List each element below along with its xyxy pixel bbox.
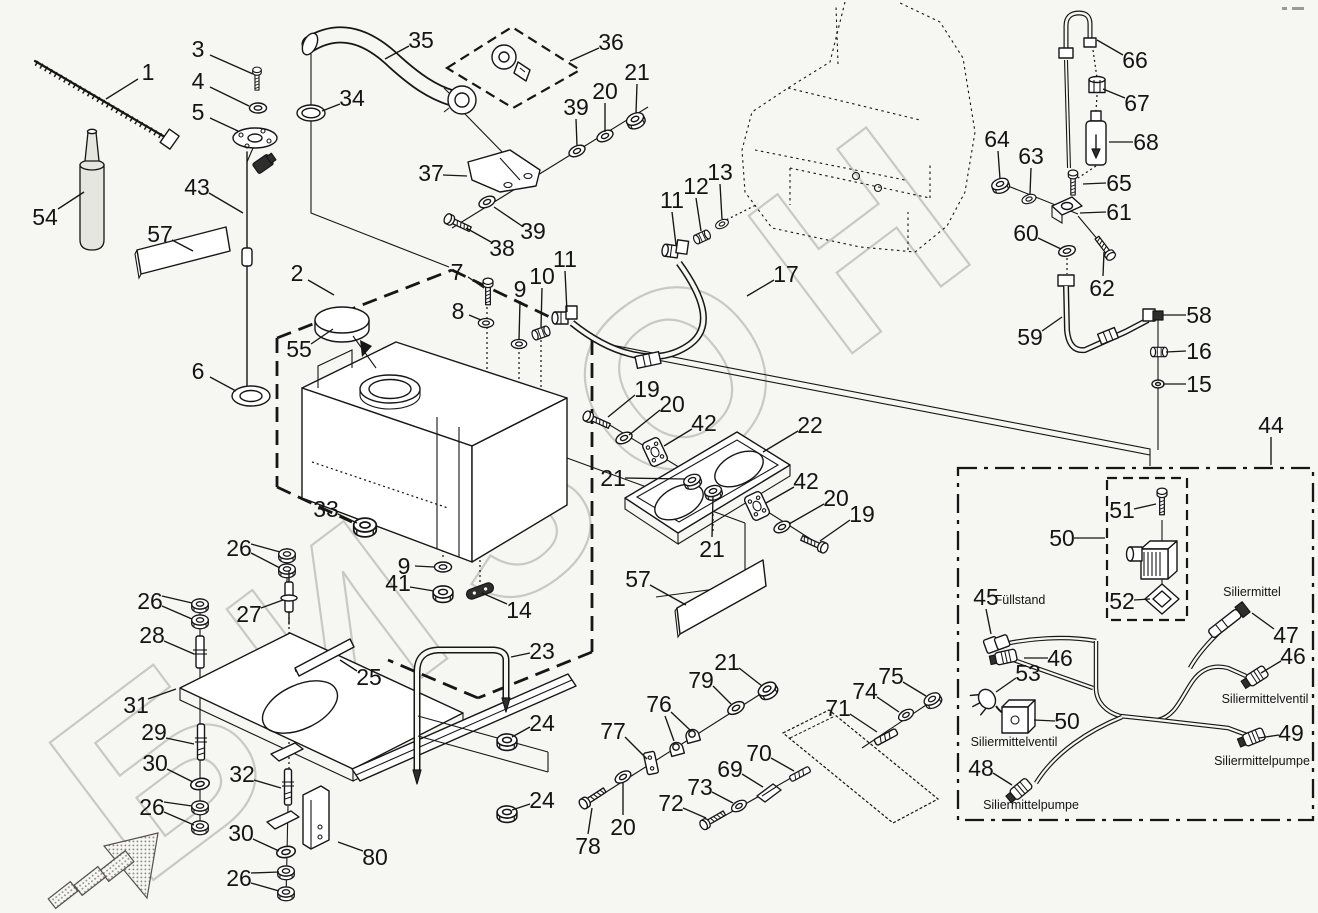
- part-nut-64: [990, 176, 1011, 195]
- callout-50: 50: [1049, 525, 1075, 551]
- leader-line: [338, 842, 363, 851]
- part-pin-70: [789, 766, 811, 782]
- leader-line: [469, 315, 481, 320]
- callout-32: 32: [229, 761, 255, 787]
- leader-line: [650, 585, 686, 605]
- bracket-61: [1052, 197, 1082, 223]
- grommet-and-key-36: [492, 45, 530, 81]
- annotation-pumpe_left: Siliermittelpumpe: [983, 798, 1079, 812]
- leader-line: [468, 277, 484, 288]
- callout-43: 43: [184, 174, 210, 200]
- callout-9: 9: [514, 276, 527, 302]
- leader-line: [986, 609, 991, 634]
- callout-62: 62: [1089, 275, 1115, 301]
- part-nut-26: [192, 599, 209, 613]
- leader-line: [1034, 720, 1055, 721]
- leader-line: [210, 55, 253, 74]
- callout-39: 39: [563, 94, 589, 120]
- leader-line: [850, 714, 877, 732]
- part-nut-33: [354, 518, 377, 537]
- part-screw-19: [800, 533, 830, 554]
- o-ring-34: [297, 105, 325, 121]
- annotation-pumpe_right: Siliermittelpumpe: [1214, 754, 1310, 768]
- leader-line: [443, 175, 467, 176]
- callout-57: 57: [625, 566, 651, 592]
- callout-67: 67: [1124, 90, 1150, 116]
- annotation-fuellstand: Füllstand: [995, 593, 1046, 607]
- callout-41: 41: [385, 570, 411, 596]
- callout-42: 42: [793, 468, 819, 494]
- part-nut-21: [756, 679, 780, 702]
- level-sensor: [232, 67, 277, 406]
- elbow-58: [1143, 309, 1163, 321]
- callout-51: 51: [1109, 497, 1135, 523]
- leader-line: [106, 79, 138, 99]
- callout-20: 20: [659, 391, 685, 417]
- callout-4: 4: [192, 68, 205, 94]
- leader-line: [625, 737, 647, 759]
- callout-8: 8: [452, 298, 465, 324]
- callout-2: 2: [291, 260, 304, 286]
- callout-24: 24: [529, 710, 555, 736]
- leader-line: [1103, 89, 1125, 98]
- label-plate-57-lower: [675, 560, 766, 637]
- callout-3: 3: [192, 36, 205, 62]
- callout-61: 61: [1106, 199, 1132, 225]
- callout-54: 54: [32, 204, 58, 230]
- part-washer-20: [772, 519, 792, 535]
- callout-7: 7: [451, 259, 464, 285]
- callout-20: 20: [823, 485, 849, 511]
- callout-46: 46: [1280, 643, 1306, 669]
- part-nut-26: [279, 549, 296, 563]
- callout-19: 19: [849, 501, 875, 527]
- callout-37: 37: [418, 160, 444, 186]
- callout-76: 76: [646, 691, 672, 717]
- callout-16: 16: [1186, 338, 1212, 364]
- diagram-canvas: БИЗОН: [0, 0, 1318, 913]
- leader-line: [210, 87, 249, 106]
- callout-79: 79: [688, 667, 714, 693]
- callout-15: 15: [1186, 371, 1212, 397]
- callout-73: 73: [687, 774, 713, 800]
- parts-diagram-page: БИЗОН: [0, 0, 1318, 913]
- callout-26: 26: [226, 865, 252, 891]
- leader-line: [512, 727, 530, 737]
- callout-12: 12: [683, 173, 709, 199]
- part-clamp-76: [685, 728, 701, 743]
- callout-26: 26: [226, 535, 252, 561]
- callout-22: 22: [797, 412, 823, 438]
- callout-21: 21: [624, 59, 650, 85]
- leader-line: [636, 84, 637, 113]
- annotation-siliermittel: Siliermittel: [1223, 585, 1281, 599]
- part-nut-41: [433, 586, 453, 603]
- leader-line: [1134, 504, 1156, 509]
- leader-line: [1166, 351, 1186, 352]
- callout-20: 20: [592, 78, 618, 104]
- leader-line: [512, 804, 530, 810]
- part-nut-26: [192, 801, 209, 815]
- part-screw-7: [483, 278, 493, 305]
- leader-line: [210, 118, 238, 131]
- part-washer-63: [1021, 193, 1037, 206]
- leader-line: [210, 377, 236, 391]
- leader-line: [996, 678, 1016, 692]
- valve-50: [1002, 700, 1035, 733]
- leader-line: [1030, 168, 1031, 194]
- callout-53: 53: [1015, 660, 1041, 686]
- callout-24: 24: [529, 787, 555, 813]
- part-nut-26: [279, 564, 296, 578]
- part-fitting-16: [1151, 347, 1168, 356]
- leader-line: [1097, 40, 1123, 55]
- callout-34: 34: [339, 85, 365, 111]
- callout-70: 70: [746, 740, 772, 766]
- leader-line: [665, 716, 674, 741]
- callout-80: 80: [362, 844, 388, 870]
- leader-line: [903, 682, 926, 696]
- callout-59: 59: [1017, 324, 1043, 350]
- bracket-37: [468, 150, 540, 192]
- callout-21: 21: [714, 649, 740, 675]
- leader-line: [308, 280, 334, 295]
- callout-44: 44: [1258, 412, 1284, 438]
- part-screw-38: [443, 213, 473, 234]
- callout-75: 75: [878, 663, 904, 689]
- direction-arrow-icon: [48, 833, 158, 908]
- callout-29: 29: [141, 719, 167, 745]
- callout-26: 26: [139, 794, 165, 820]
- callout-30: 30: [142, 750, 168, 776]
- part-washer-74: [897, 707, 916, 723]
- part-nut-21: [625, 110, 648, 131]
- callout-21: 21: [600, 465, 626, 491]
- callout-78: 78: [575, 833, 601, 859]
- washer-15: [1152, 380, 1164, 388]
- leader-line: [766, 487, 794, 503]
- plug-53: [968, 686, 1000, 717]
- part-pin-71: [874, 728, 898, 745]
- callout-48: 48: [968, 755, 994, 781]
- cable-tie: [35, 61, 179, 149]
- seal-52: [1145, 584, 1179, 614]
- callout-74: 74: [852, 678, 878, 704]
- callout-64: 64: [984, 126, 1010, 152]
- leader-line: [1042, 317, 1062, 331]
- callout-33: 33: [313, 496, 339, 522]
- callout-19: 19: [634, 376, 660, 402]
- callout-52: 52: [1109, 588, 1135, 614]
- callout-23: 23: [529, 638, 555, 664]
- leader-line: [771, 758, 794, 771]
- leader-line: [713, 686, 731, 704]
- part-nut-26: [192, 821, 209, 835]
- bracket-80: [303, 786, 329, 849]
- solenoid-50: [1127, 541, 1178, 590]
- leader-line: [588, 808, 592, 834]
- callout-11: 11: [660, 187, 684, 213]
- leader-line: [1083, 183, 1106, 184]
- filler-pipe-35: [299, 31, 476, 114]
- kit-screw-51: [1157, 488, 1167, 541]
- wiring-harness: [991, 612, 1247, 783]
- leader-line: [998, 151, 1000, 179]
- callout-35: 35: [408, 27, 434, 53]
- callout-42: 42: [691, 410, 717, 436]
- callout-38: 38: [489, 235, 515, 261]
- callout-25: 25: [356, 664, 382, 690]
- nut-67: [1089, 77, 1105, 93]
- leader-line: [466, 228, 491, 242]
- part-nut-26: [278, 866, 295, 880]
- nozzle-47: [1207, 602, 1250, 640]
- part-nut-26: [278, 887, 295, 901]
- part-washer-9: [511, 340, 526, 349]
- part-nut-26: [192, 615, 209, 629]
- leader-line: [570, 48, 599, 61]
- callout-20: 20: [610, 814, 636, 840]
- part-screw-62: [1093, 235, 1117, 262]
- part-plate-77: [643, 751, 658, 775]
- part-clip-69: [757, 784, 781, 802]
- leader-line: [494, 207, 522, 226]
- leader-line: [251, 872, 279, 873]
- callout-5: 5: [192, 99, 205, 125]
- leader-line: [1252, 613, 1274, 629]
- callout-60: 60: [1013, 220, 1039, 246]
- callout-21: 21: [699, 536, 725, 562]
- leader-line: [1103, 252, 1104, 276]
- part-nut-24: [497, 806, 517, 823]
- callout-46: 46: [1047, 645, 1073, 671]
- leader-line: [739, 668, 762, 686]
- callout-10: 10: [529, 263, 555, 289]
- callout-50: 50: [1054, 708, 1080, 734]
- callout-39: 39: [520, 218, 546, 244]
- callout-72: 72: [658, 790, 684, 816]
- part-screw-78: [578, 786, 608, 811]
- part-screw-65: [1068, 170, 1077, 195]
- part-screw-72: [698, 809, 727, 831]
- leader-line: [789, 504, 824, 524]
- callout-57: 57: [147, 221, 173, 247]
- corner-mark: [1282, 7, 1304, 10]
- callout-31: 31: [123, 692, 149, 718]
- leader-line: [576, 119, 577, 146]
- leader-line: [671, 712, 690, 730]
- annotation-ventil_right: Siliermittelventil: [1222, 692, 1309, 706]
- part-nut-75: [922, 690, 944, 711]
- leader-line: [683, 808, 706, 818]
- callout-13: 13: [707, 159, 733, 185]
- callout-26: 26: [137, 588, 163, 614]
- part-washer-60: [1057, 244, 1076, 258]
- leader-line: [209, 193, 243, 213]
- callout-71: 71: [825, 695, 851, 721]
- callout-63: 63: [1018, 143, 1044, 169]
- callout-14: 14: [506, 597, 532, 623]
- leader-line: [1080, 212, 1106, 213]
- leader-line: [877, 697, 899, 712]
- leader-line: [820, 520, 850, 541]
- leader-line: [1038, 238, 1061, 249]
- filter-68: [1086, 111, 1106, 165]
- callout-28: 28: [139, 622, 165, 648]
- callout-69: 69: [717, 756, 743, 782]
- callout-68: 68: [1133, 129, 1159, 155]
- leader-line: [251, 883, 279, 891]
- callout-27: 27: [236, 601, 262, 627]
- leader-line: [742, 774, 763, 787]
- callout-30: 30: [228, 820, 254, 846]
- leader-line: [322, 104, 340, 111]
- callout-1: 1: [142, 59, 155, 85]
- leader-line: [712, 792, 733, 803]
- callout-11: 11: [553, 246, 577, 272]
- callout-66: 66: [1122, 47, 1148, 73]
- leader-line: [993, 773, 1012, 785]
- callout-58: 58: [1186, 302, 1212, 328]
- part-rod-29: [195, 724, 207, 760]
- part-washer-9: [435, 562, 452, 572]
- callout-65: 65: [1106, 170, 1132, 196]
- callout-49: 49: [1278, 720, 1304, 746]
- callout-36: 36: [598, 29, 624, 55]
- callout-55: 55: [286, 336, 312, 362]
- annotation-ventil_left: Siliermittelventil: [971, 735, 1058, 749]
- sealant-tube: [80, 129, 104, 250]
- callout-6: 6: [192, 358, 205, 384]
- callout-17: 17: [773, 261, 799, 287]
- callout-77: 77: [600, 718, 626, 744]
